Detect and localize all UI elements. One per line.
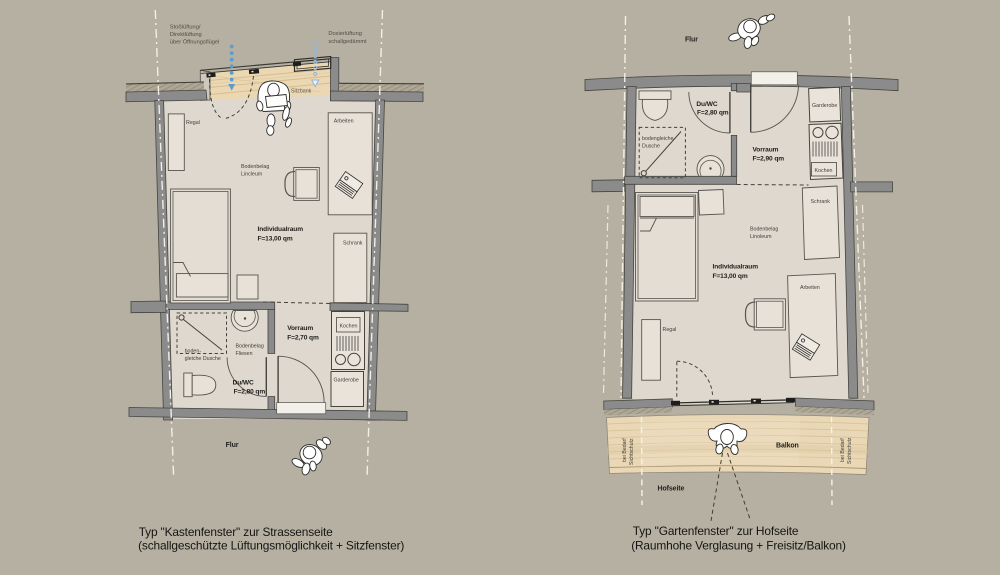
- svg-text:F=13,00 qm: F=13,00 qm: [713, 273, 748, 280]
- svg-text:Kochen: Kochen: [340, 324, 358, 330]
- svg-text:Sichtschutz: Sichtschutz: [847, 437, 853, 464]
- svg-text:Direktlüftung: Direktlüftung: [170, 32, 202, 38]
- svg-text:Kochen: Kochen: [815, 168, 833, 174]
- svg-text:bei Bedarf: bei Bedarf: [840, 438, 846, 462]
- svg-text:Individualraum: Individualraum: [258, 226, 304, 233]
- svg-text:Du/WC: Du/WC: [233, 380, 254, 387]
- svg-text:Regal: Regal: [186, 120, 200, 126]
- svg-text:(schallgeschützte Lüftungsmögl: (schallgeschützte Lüftungsmöglichkeit + …: [138, 539, 404, 553]
- svg-text:Garderobe: Garderobe: [812, 103, 837, 109]
- svg-text:Arbeiten: Arbeiten: [334, 119, 354, 125]
- svg-text:Stoßlüftung/: Stoßlüftung/: [170, 24, 201, 30]
- svg-text:bodengleiche: bodengleiche: [642, 136, 674, 142]
- svg-text:Dosierlüftung: Dosierlüftung: [328, 31, 362, 37]
- svg-text:Bodenbelag: Bodenbelag: [236, 344, 264, 350]
- svg-text:Vorraum: Vorraum: [753, 147, 779, 154]
- svg-text:F=2,70 qm: F=2,70 qm: [287, 335, 319, 342]
- svg-text:Regal: Regal: [663, 327, 677, 333]
- svg-text:bei Bedarf: bei Bedarf: [622, 438, 628, 462]
- svg-text:F=13,00 qm: F=13,00 qm: [258, 236, 293, 243]
- svg-text:Dusche: Dusche: [642, 144, 660, 150]
- svg-text:Flur: Flur: [226, 442, 239, 449]
- svg-text:Bodenbelag: Bodenbelag: [241, 164, 269, 170]
- svg-text:Schrank: Schrank: [811, 199, 831, 205]
- svg-text:F=2,80 qm: F=2,80 qm: [697, 110, 729, 117]
- svg-text:gleiche Dusche: gleiche Dusche: [185, 356, 221, 362]
- svg-text:F=2,80 qm: F=2,80 qm: [234, 389, 266, 396]
- svg-text:(Raumhohe Verglasung + Freisit: (Raumhohe Verglasung + Freisitz/Balkon): [631, 539, 846, 553]
- svg-text:Schrank: Schrank: [343, 241, 363, 247]
- svg-text:Linoleum: Linoleum: [750, 234, 772, 240]
- svg-text:Balkon: Balkon: [776, 443, 799, 450]
- svg-text:Typ "Gartenfenster" zur Hofsei: Typ "Gartenfenster" zur Hofseite: [633, 524, 799, 538]
- svg-text:Garderobe: Garderobe: [334, 378, 359, 384]
- svg-text:Hofseite: Hofseite: [658, 486, 685, 493]
- svg-text:schallgedämmt: schallgedämmt: [328, 39, 367, 45]
- svg-text:Lincleum: Lincleum: [241, 172, 263, 178]
- svg-text:Vorraum: Vorraum: [287, 325, 313, 332]
- svg-text:F=2,90 qm: F=2,90 qm: [753, 156, 785, 163]
- svg-text:Du/WC: Du/WC: [696, 101, 717, 108]
- svg-text:Sichtschutz: Sichtschutz: [629, 438, 635, 465]
- svg-text:Bodenbelag: Bodenbelag: [750, 227, 778, 233]
- svg-text:Typ "Kastenfenster" zur Strass: Typ "Kastenfenster" zur Strassenseite: [139, 525, 333, 539]
- svg-text:Arbeiten: Arbeiten: [800, 285, 820, 291]
- svg-text:über Öffnungsflügel: über Öffnungsflügel: [170, 39, 220, 46]
- svg-text:boden-: boden-: [185, 349, 202, 355]
- svg-text:Sitzbank: Sitzbank: [291, 89, 312, 95]
- svg-text:Individualraum: Individualraum: [713, 264, 759, 271]
- svg-text:Fliesen: Fliesen: [236, 351, 253, 357]
- svg-text:Flur: Flur: [685, 37, 698, 44]
